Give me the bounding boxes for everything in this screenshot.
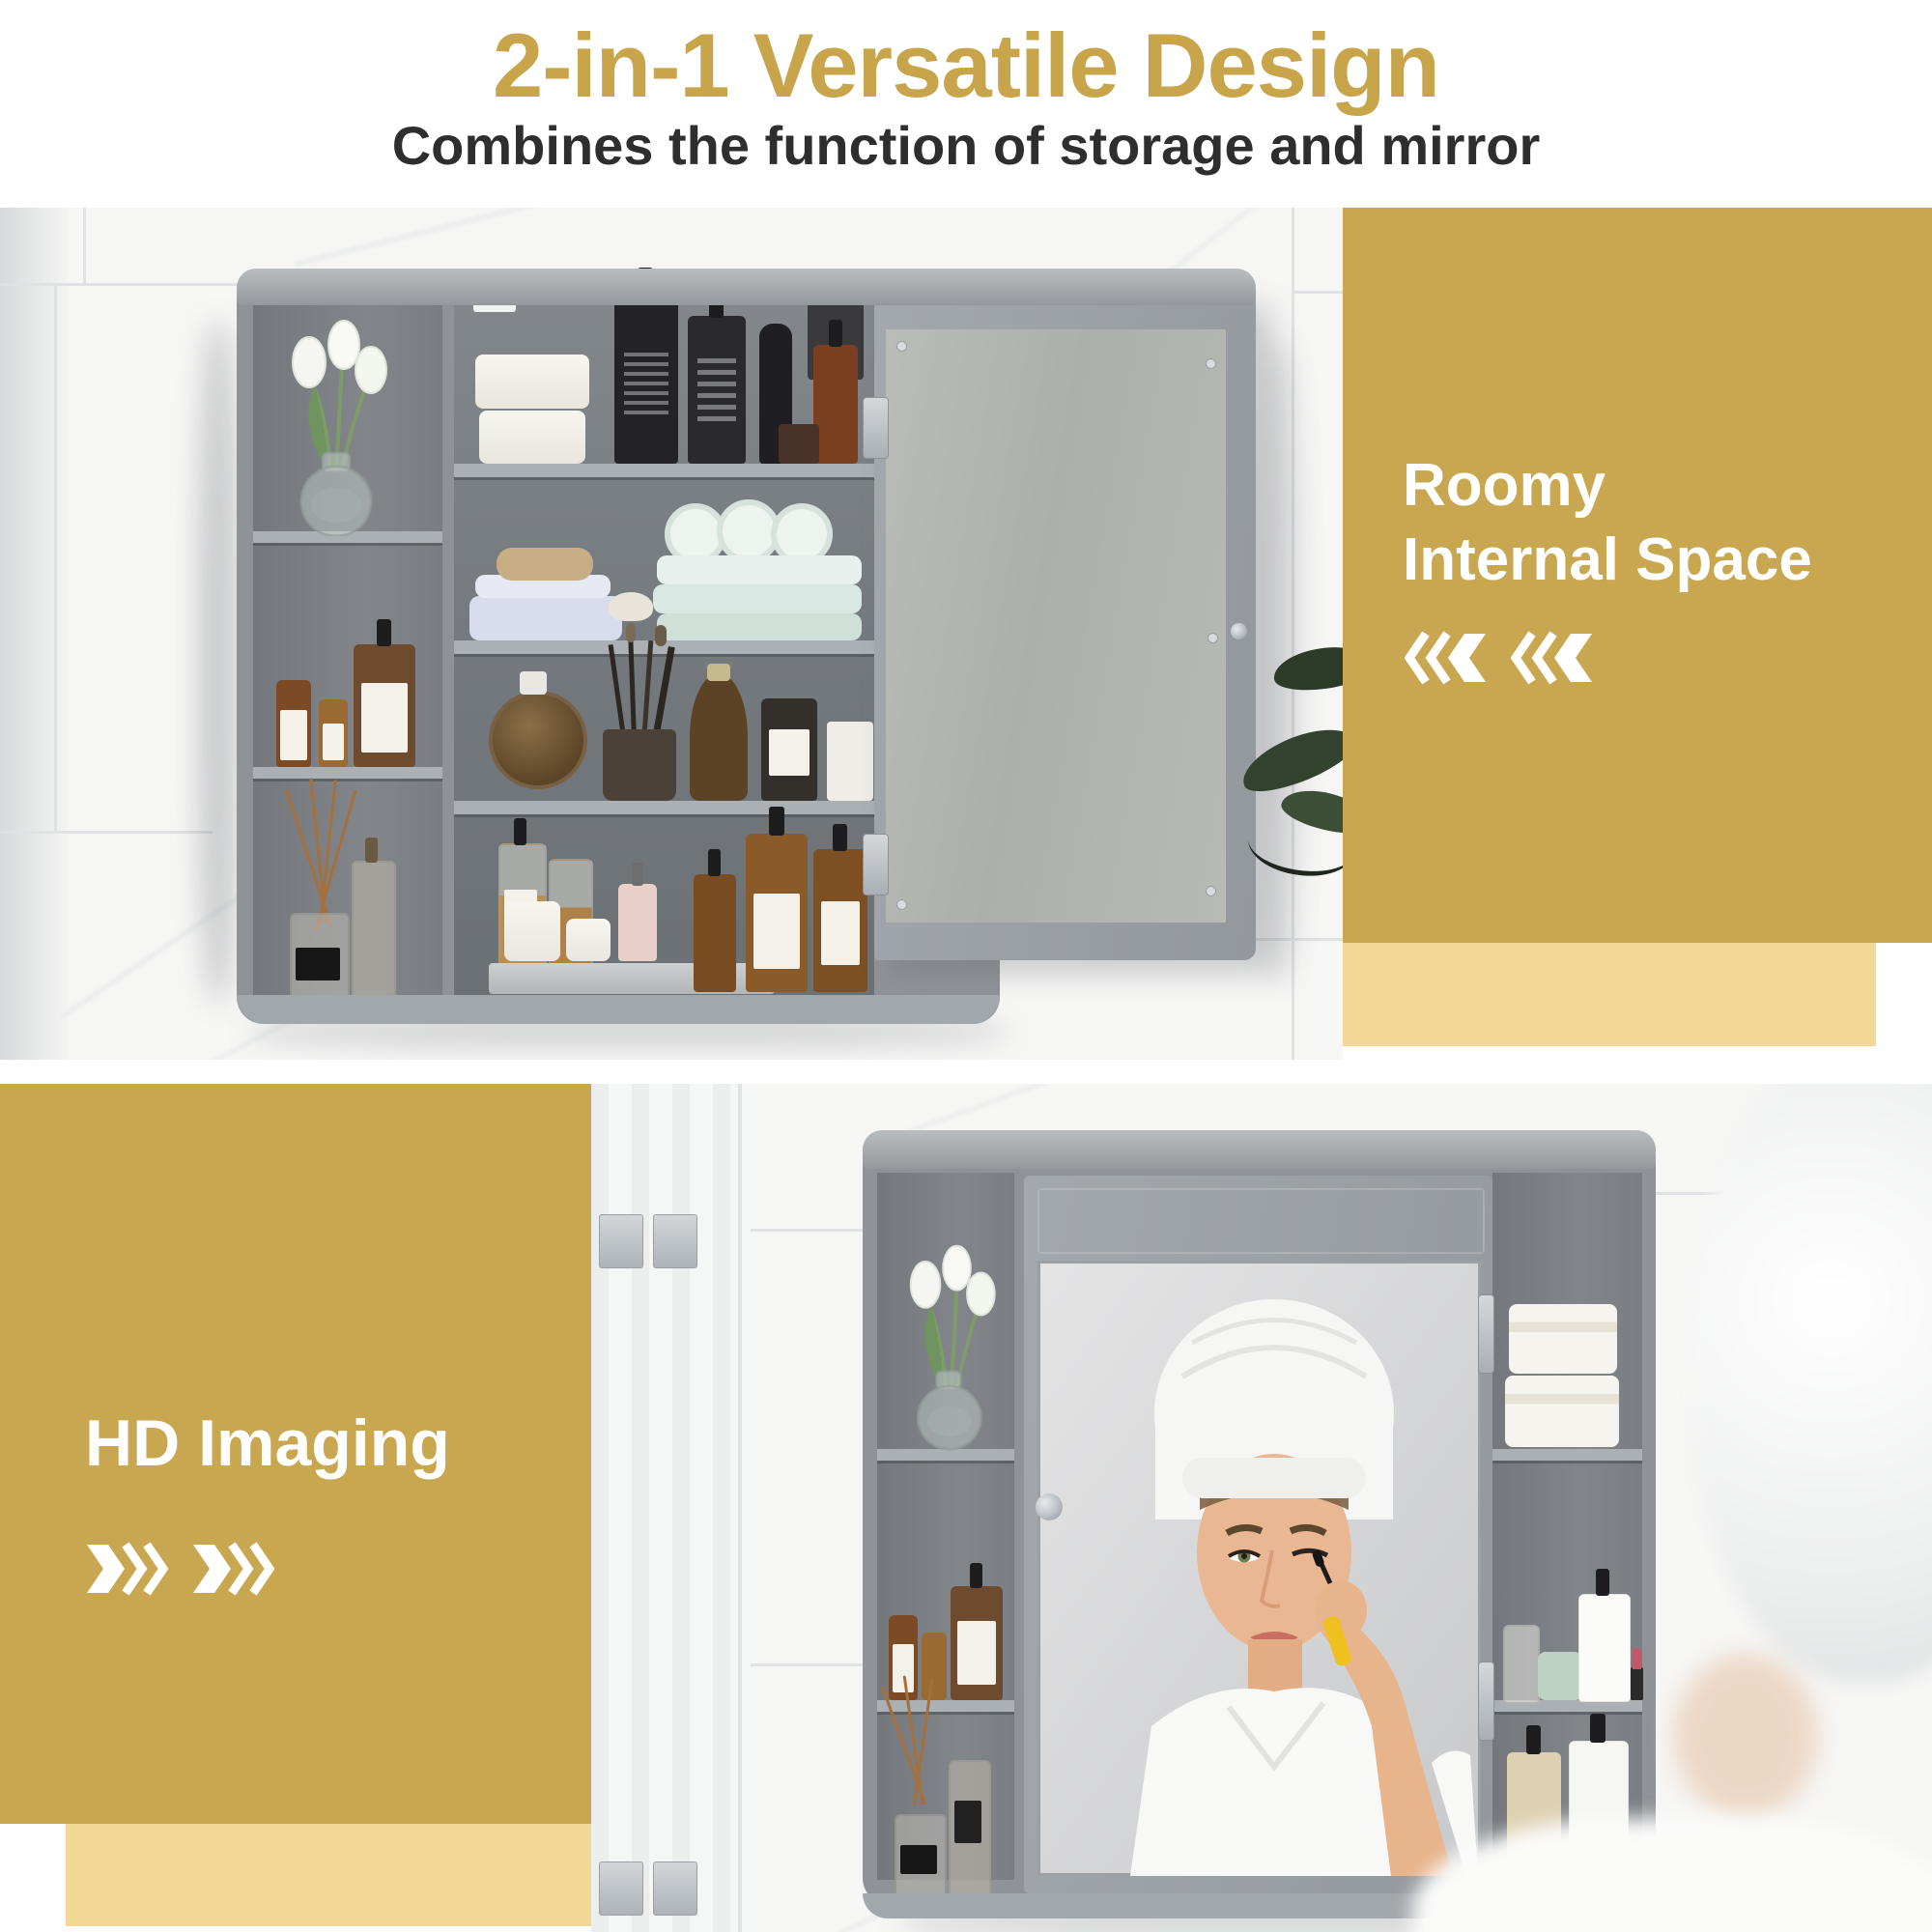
round-perfume [489, 691, 587, 789]
cabinet-top-board [863, 1130, 1656, 1169]
pump-cap [833, 824, 847, 851]
mirror-panel [886, 329, 1226, 923]
glass-clamp [599, 1214, 643, 1268]
shelf [454, 801, 874, 814]
roomy-heading: Roomy Internal Space [1403, 449, 1812, 598]
pump-cap [632, 863, 643, 886]
product-infographic: 2-in-1 Versatile Design Combines the fun… [0, 0, 1932, 1932]
pump-cap [377, 619, 391, 646]
cabinet-bottom-board [237, 995, 1000, 1024]
bottle-text [624, 353, 668, 414]
pump-cap [970, 1563, 982, 1588]
perfume-cap [520, 671, 547, 695]
hd-panel: HD Imaging [0, 1084, 591, 1824]
triple-chevron-left-icon [1405, 631, 1486, 690]
page-subtitle: Combines the function of storage and mir… [0, 114, 1932, 177]
pump-cap [708, 849, 721, 876]
brush-tip [655, 625, 667, 646]
door-top-panel [1037, 1188, 1485, 1254]
soap-bar [497, 548, 593, 581]
mirror-screw [1207, 633, 1218, 643]
shelf [877, 1700, 1014, 1712]
glass-clamp [653, 1214, 697, 1268]
photo-mirror-in-use [591, 1084, 1932, 1932]
pink-bottle [618, 884, 657, 961]
pump-cap [1526, 1725, 1541, 1754]
door-hinge [863, 834, 889, 895]
grout-line [0, 283, 241, 286]
tulip-vase [877, 1240, 1016, 1451]
wall-shadow [198, 324, 239, 1000]
cream-jar-stack [479, 411, 585, 464]
bottle-label [957, 1621, 996, 1685]
accent-strip [66, 1824, 591, 1926]
teardrop-perfume [690, 673, 748, 801]
lotus-flower [609, 592, 653, 621]
pump-cap [1596, 1569, 1609, 1596]
white-pump-bottle [1578, 1594, 1631, 1702]
mirror-reflection [1037, 1261, 1481, 1876]
grout-line [0, 831, 213, 834]
cabinet-top-board [237, 269, 1256, 305]
grout-line [1292, 291, 1343, 294]
mirror-screw [1206, 886, 1216, 896]
bottle-label [753, 894, 800, 969]
bottle-label [361, 683, 408, 753]
viewer-towel-head [1692, 1084, 1932, 1683]
door-hinge [1478, 1662, 1494, 1741]
grout-line [751, 1229, 863, 1232]
door-hinge [1478, 1294, 1494, 1374]
brush-tip [626, 623, 636, 642]
grout-line [83, 208, 86, 285]
shower-glass-strip [0, 208, 68, 1060]
white-jar [566, 919, 611, 961]
folded-towel [657, 555, 862, 584]
amber-pump-bottle [694, 874, 736, 992]
diffuser-label [900, 1845, 937, 1874]
door-knob [1036, 1493, 1063, 1520]
triple-chevron-left-icon [1511, 631, 1592, 690]
folded-towel [653, 584, 862, 613]
cologne-label [769, 729, 810, 776]
photo-open-cabinet [0, 208, 1343, 1060]
bottle-label-dark [954, 1801, 981, 1843]
marble-vein [294, 208, 604, 267]
accent-strip [1343, 943, 1876, 1046]
white-jar-stack [1505, 1376, 1619, 1447]
grout-line [54, 283, 57, 834]
small-jar [779, 424, 819, 464]
door-hinge [863, 397, 889, 459]
shelf [1492, 1449, 1642, 1461]
candle-cup [827, 722, 873, 801]
bottle-label [280, 710, 307, 760]
pump-cap [769, 807, 784, 836]
perfume-band [707, 664, 730, 681]
bottle-text [697, 358, 736, 426]
folded-towel [657, 613, 862, 640]
white-jar [504, 901, 560, 961]
green-glass-jar [1538, 1652, 1582, 1700]
mirror-screw [896, 341, 907, 352]
bottle-cap [365, 838, 378, 863]
glass-clamp [599, 1861, 643, 1916]
chevrons-right-row [87, 1542, 274, 1601]
white-jar-stack [1509, 1304, 1617, 1374]
pump-cap [514, 818, 526, 845]
pump-cap [1590, 1714, 1605, 1743]
tulip-vase [259, 316, 413, 536]
shelf [454, 464, 874, 477]
clear-bottle [1503, 1625, 1540, 1704]
hd-heading: HD Imaging [85, 1403, 450, 1484]
pump-cap [829, 320, 842, 347]
roomy-panel: Roomy Internal Space [1343, 208, 1932, 943]
amber-bottle [813, 345, 858, 464]
mirror-screw [1206, 358, 1216, 369]
sheer-curtain [591, 1084, 751, 1932]
triple-chevron-right-icon [87, 1542, 168, 1601]
triple-chevron-right-icon [193, 1542, 274, 1601]
folded-towel [469, 596, 622, 640]
bottle-label [323, 724, 344, 760]
bottle-label [821, 901, 860, 965]
chevrons-left-row [1405, 631, 1592, 690]
tall-glass-bottle [352, 861, 396, 1009]
glass-clamp [653, 1861, 697, 1916]
diffuser-label [296, 948, 340, 980]
mirror-screw [896, 899, 907, 910]
bottle [922, 1633, 947, 1700]
glass-edge [738, 1084, 742, 1932]
shelf [253, 767, 442, 779]
page-title: 2-in-1 Versatile Design [0, 14, 1932, 118]
door-knob [1231, 623, 1247, 639]
cream-jar-stack [475, 355, 589, 409]
viewer-neck [1673, 1654, 1818, 1818]
brush-cup [603, 729, 676, 801]
lipstick-bullet [1633, 1648, 1641, 1669]
lipstick [1631, 1667, 1643, 1700]
grout-line [751, 1663, 863, 1666]
